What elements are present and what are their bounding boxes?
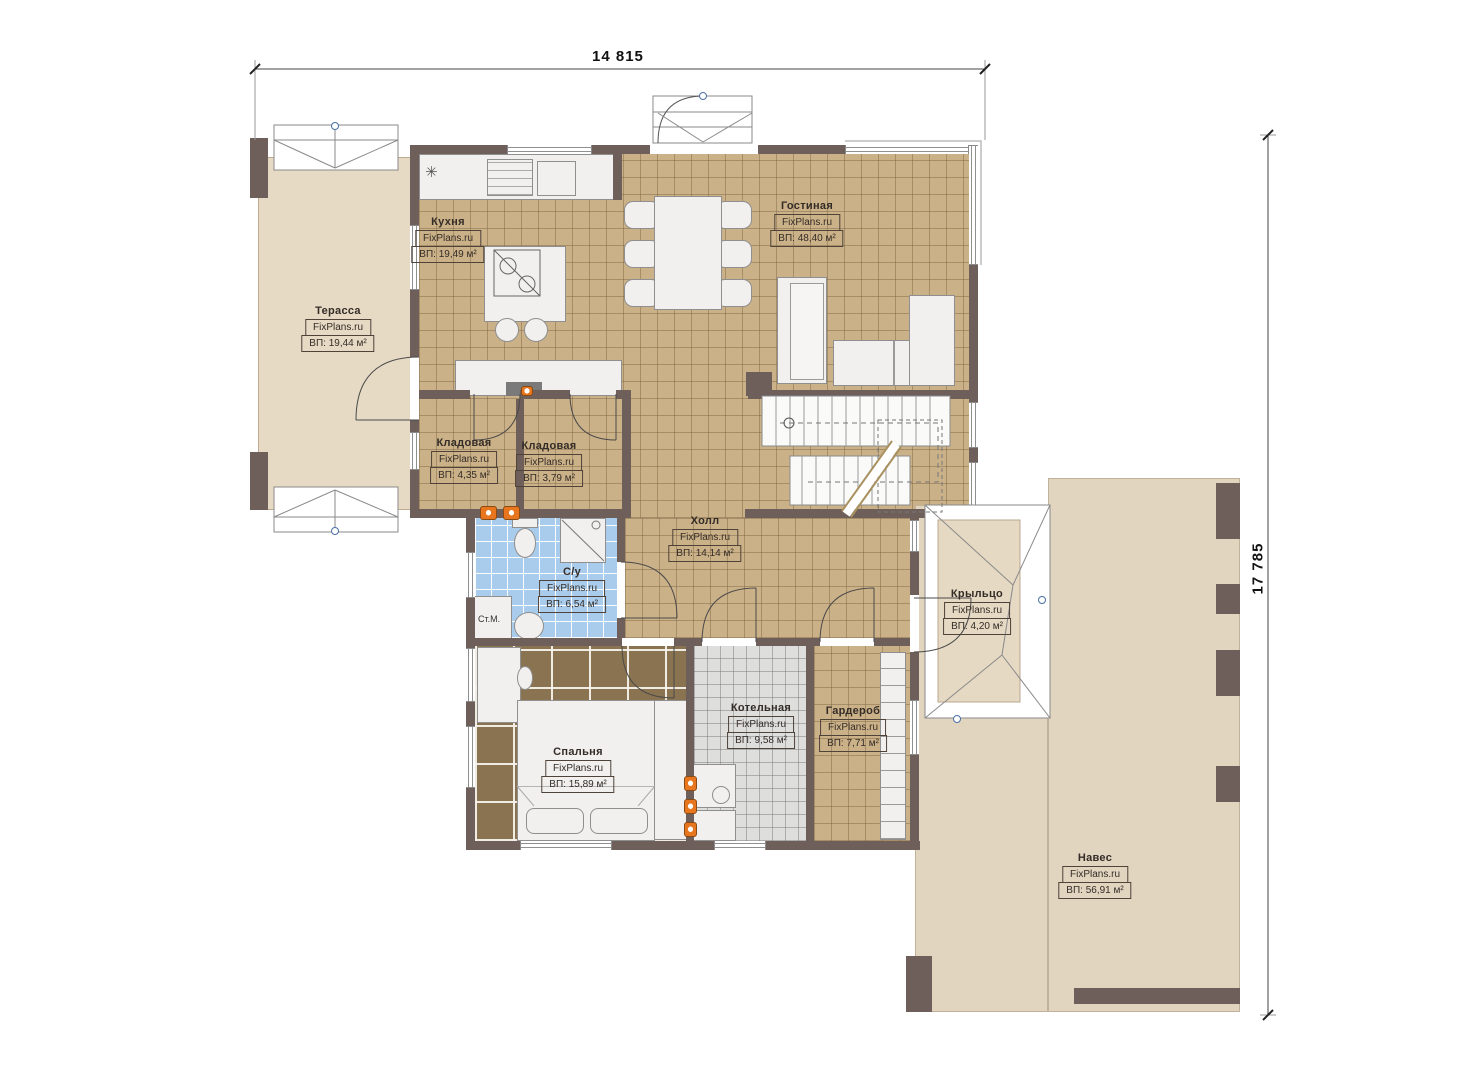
room-name: Навес bbox=[1078, 852, 1112, 864]
room-label-storage-2: Кладовая FixPlans.ru ВП: 3,79 м² bbox=[515, 440, 583, 487]
room-label-bedroom: Спальня FixPlans.ru ВП: 15,89 м² bbox=[541, 746, 614, 793]
wall bbox=[910, 755, 919, 850]
radiator bbox=[521, 386, 533, 396]
window bbox=[910, 520, 919, 552]
canopy-floor bbox=[915, 505, 1048, 1012]
water-heater bbox=[712, 786, 730, 804]
brand-watermark: FixPlans.ru bbox=[516, 454, 582, 471]
toilet bbox=[514, 528, 536, 558]
wall bbox=[419, 390, 470, 399]
wall bbox=[466, 638, 622, 646]
wall bbox=[756, 638, 820, 646]
appliance-icon: ✳ bbox=[425, 163, 438, 181]
room-label-storage-1: Кладовая FixPlans.ru ВП: 4,35 м² bbox=[430, 437, 498, 484]
boiler-unit bbox=[692, 810, 736, 841]
room-name: Гостиная bbox=[781, 200, 833, 212]
canopy-wall bbox=[1074, 988, 1240, 1004]
canopy-pillar bbox=[1216, 650, 1240, 696]
window bbox=[714, 841, 766, 850]
canopy-floor bbox=[1048, 478, 1240, 1012]
wall bbox=[969, 509, 978, 518]
wall bbox=[758, 145, 845, 154]
bar-stool bbox=[524, 318, 548, 342]
dimension-height: 17 785 bbox=[1249, 543, 1266, 595]
corner-window bbox=[969, 145, 978, 265]
room-label-kitchen: Кухня FixPlans.ru ВП: 19,49 м² bbox=[411, 216, 484, 263]
corner-window bbox=[845, 145, 969, 154]
washing-machine-label: Ст.М. bbox=[478, 614, 500, 624]
room-name: Холл bbox=[691, 515, 720, 527]
wall bbox=[617, 509, 625, 562]
room-name: Крыльцо bbox=[951, 588, 1003, 600]
room-name: Терасса bbox=[315, 305, 361, 317]
room-label-terrace: Терасса FixPlans.ru ВП: 19,44 м² bbox=[301, 305, 374, 352]
floor-plan: ✳ Ст.М. bbox=[0, 0, 1474, 1080]
window bbox=[466, 726, 475, 788]
wall bbox=[622, 390, 631, 518]
wall bbox=[745, 509, 935, 518]
canopy-pillar bbox=[906, 956, 932, 1012]
brand-watermark: FixPlans.ru bbox=[305, 319, 371, 336]
radiator bbox=[684, 799, 697, 814]
room-name: Спальня bbox=[553, 746, 603, 758]
room-area: ВП: 15,89 м² bbox=[541, 776, 614, 793]
room-name: Кухня bbox=[431, 216, 465, 228]
wall bbox=[806, 646, 814, 841]
wall bbox=[969, 448, 978, 462]
brand-watermark: FixPlans.ru bbox=[415, 230, 481, 247]
wall bbox=[410, 290, 419, 357]
room-area: ВП: 19,49 м² bbox=[411, 246, 484, 263]
terrace-pillar bbox=[250, 138, 268, 198]
entrance-door-gap bbox=[650, 145, 758, 154]
window bbox=[507, 145, 592, 154]
window bbox=[910, 700, 919, 755]
room-area: ВП: 56,91 м² bbox=[1058, 882, 1131, 899]
dimension-line-top bbox=[250, 60, 990, 140]
room-name: Котельная bbox=[731, 702, 791, 714]
bathroom-sink bbox=[514, 612, 544, 640]
wall bbox=[612, 841, 714, 850]
room-area: ВП: 7,71 м² bbox=[819, 735, 887, 752]
wall bbox=[466, 509, 475, 552]
room-label-porch: Крыльцо FixPlans.ru ВП: 4,20 м² bbox=[943, 588, 1011, 635]
room-area: ВП: 4,35 м² bbox=[430, 467, 498, 484]
kitchen-sink bbox=[487, 159, 533, 196]
window bbox=[520, 841, 612, 850]
room-area: ВП: 19,44 м² bbox=[301, 335, 374, 352]
window bbox=[466, 552, 475, 598]
wall bbox=[410, 420, 419, 432]
terrace-door-gap bbox=[410, 357, 419, 420]
wall bbox=[466, 598, 475, 648]
sofa-seat bbox=[790, 283, 824, 380]
wall bbox=[410, 145, 419, 225]
canopy-pillar bbox=[1216, 584, 1240, 614]
brand-watermark: FixPlans.ru bbox=[820, 719, 886, 736]
wall bbox=[410, 145, 507, 154]
kitchen-island bbox=[484, 246, 566, 322]
window bbox=[969, 462, 978, 509]
terrace-pillar bbox=[250, 452, 268, 510]
wall bbox=[592, 145, 650, 154]
room-label-living: Гостиная FixPlans.ru ВП: 48,40 м² bbox=[770, 200, 843, 247]
porch-door-gap bbox=[910, 595, 919, 652]
canopy-pillar bbox=[1216, 483, 1240, 539]
wall bbox=[466, 702, 475, 726]
room-area: ВП: 14,14 м² bbox=[668, 545, 741, 562]
dimension-width: 14 815 bbox=[592, 48, 644, 65]
wall bbox=[674, 638, 702, 646]
wall bbox=[969, 265, 978, 402]
entrance-canopy bbox=[653, 93, 752, 144]
chimney bbox=[746, 372, 772, 396]
room-area: ВП: 6,54 м² bbox=[538, 596, 606, 613]
wall bbox=[766, 841, 920, 850]
room-label-canopy: Навес FixPlans.ru ВП: 56,91 м² bbox=[1058, 852, 1131, 899]
window bbox=[410, 432, 419, 470]
wall bbox=[910, 652, 919, 700]
brand-watermark: FixPlans.ru bbox=[431, 451, 497, 468]
brand-watermark: FixPlans.ru bbox=[944, 602, 1010, 619]
wall bbox=[613, 154, 622, 200]
room-name: С/у bbox=[563, 566, 581, 578]
brand-watermark: FixPlans.ru bbox=[774, 214, 840, 231]
brand-watermark: FixPlans.ru bbox=[728, 716, 794, 733]
radiator bbox=[480, 506, 497, 520]
bedroom-wardrobe bbox=[654, 700, 688, 840]
room-label-bathroom: С/у FixPlans.ru ВП: 6,54 м² bbox=[538, 566, 606, 613]
pillow bbox=[590, 808, 648, 834]
wall bbox=[910, 509, 919, 520]
room-label-hall: Холл FixPlans.ru ВП: 14,14 м² bbox=[668, 515, 741, 562]
wall bbox=[748, 390, 969, 399]
bar-stool bbox=[495, 318, 519, 342]
window bbox=[969, 402, 978, 448]
room-name: Кладовая bbox=[521, 440, 576, 452]
brand-watermark: FixPlans.ru bbox=[539, 580, 605, 597]
room-label-boiler: Котельная FixPlans.ru ВП: 9,58 м² bbox=[727, 702, 795, 749]
shower bbox=[560, 518, 606, 563]
room-label-wardrobe: Гардероб FixPlans.ru ВП: 7,71 м² bbox=[819, 705, 887, 752]
window bbox=[935, 509, 969, 518]
room-area: ВП: 48,40 м² bbox=[770, 230, 843, 247]
wall bbox=[617, 618, 625, 638]
room-name: Гардероб bbox=[826, 705, 880, 717]
desk bbox=[477, 647, 521, 723]
desk-chair bbox=[517, 666, 533, 690]
radiator bbox=[503, 506, 520, 520]
room-area: ВП: 3,79 м² bbox=[515, 470, 583, 487]
room-name: Кладовая bbox=[436, 437, 491, 449]
dining-table bbox=[654, 196, 722, 310]
brand-watermark: FixPlans.ru bbox=[545, 760, 611, 777]
room-area: ВП: 9,58 м² bbox=[727, 732, 795, 749]
wall bbox=[466, 841, 520, 850]
wall bbox=[910, 552, 919, 595]
canopy-pillar bbox=[1216, 766, 1240, 802]
wall bbox=[874, 638, 910, 646]
brand-watermark: FixPlans.ru bbox=[672, 529, 738, 546]
radiator bbox=[684, 822, 697, 837]
room-area: ВП: 4,20 м² bbox=[943, 618, 1011, 635]
brand-watermark: FixPlans.ru bbox=[1062, 866, 1128, 883]
radiator bbox=[684, 776, 697, 791]
kitchen-appliance bbox=[537, 161, 576, 196]
sofa-corner bbox=[909, 295, 955, 386]
pillow bbox=[526, 808, 584, 834]
window bbox=[466, 648, 475, 702]
